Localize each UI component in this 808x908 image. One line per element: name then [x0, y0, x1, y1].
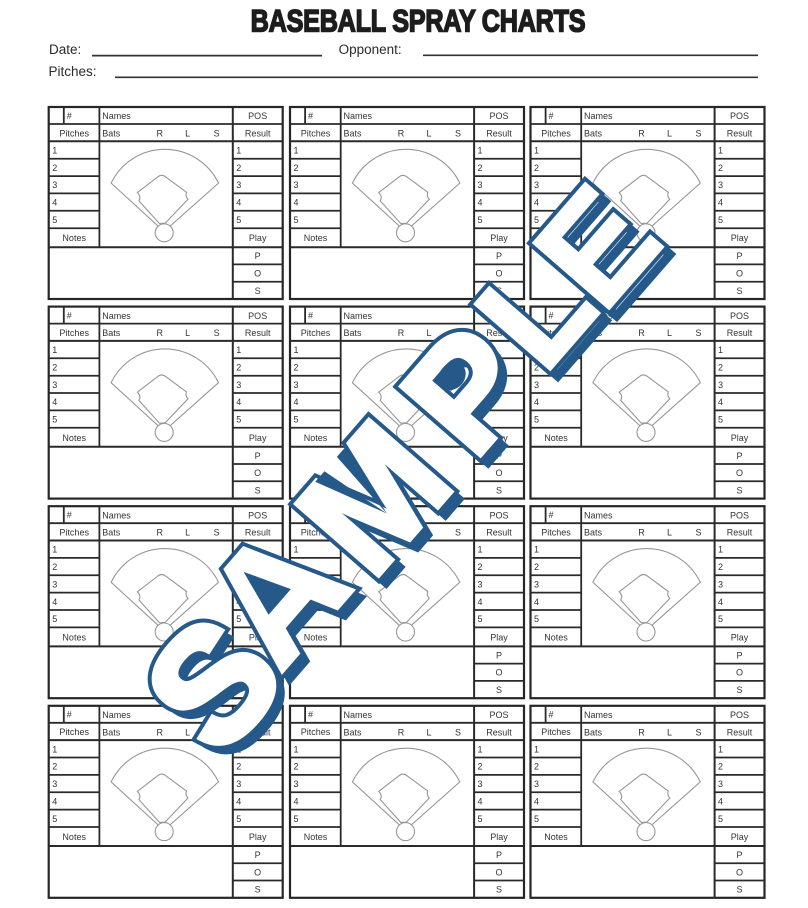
- svg-text:BASEBALL SPRAY CHARTS: BASEBALL SPRAY CHARTS: [251, 4, 586, 39]
- svg-text:Pitches:: Pitches:: [49, 64, 97, 79]
- svg-text:Opponent:: Opponent:: [339, 42, 402, 57]
- svg-text:Date:: Date:: [49, 42, 81, 57]
